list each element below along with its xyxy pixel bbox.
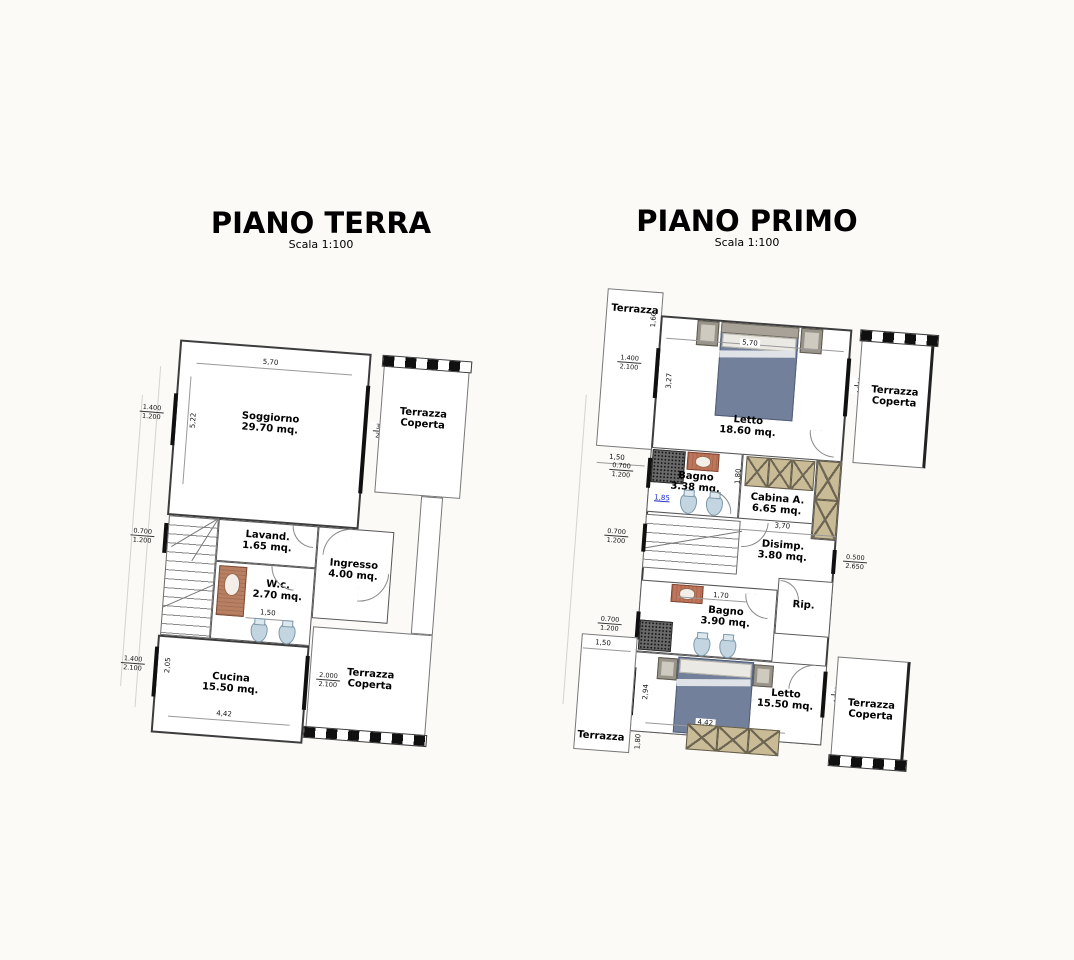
wardrobe-symbol bbox=[747, 728, 780, 756]
window-dim-bagno-grande-left: 0.700 1.200 bbox=[594, 614, 625, 633]
first-floor-title: PIANO PRIMO bbox=[582, 204, 912, 238]
wardrobe-symbol bbox=[815, 460, 842, 501]
room-label-bagno-grande: Bagno 3.90 mq. bbox=[695, 604, 756, 630]
ground-floor-plan: Soggiorno 29.70 mq. 5,70 5,22 1.400 1.20… bbox=[151, 339, 475, 755]
nightstand-symbol bbox=[657, 657, 679, 680]
nightstand-symbol bbox=[800, 328, 824, 355]
window-dim-stairs-left: 0.700 1.200 bbox=[127, 526, 158, 545]
wardrobe-symbol bbox=[767, 458, 792, 490]
window-dim-cucina-right: 2.000 2.100 bbox=[313, 670, 344, 689]
wardrobe-symbol bbox=[685, 723, 718, 751]
window-height: 2.650 bbox=[839, 561, 870, 571]
window-dim-letto-grande-left: 1.400 2.100 bbox=[614, 353, 645, 372]
dim-terrace-bottom-depth: 1,80 bbox=[633, 733, 642, 749]
bed-fold bbox=[677, 679, 751, 686]
terrace-label: Terrazza Coperta bbox=[838, 697, 903, 724]
nightstand-top bbox=[661, 661, 674, 676]
dim-terrace-top-depth: 1,60 bbox=[649, 311, 658, 327]
dim-bagno-grande-width: 1,70 bbox=[711, 591, 731, 600]
window-disimpegno-right bbox=[831, 550, 837, 574]
dim-bagno-piccolo-width: 1,85 bbox=[654, 493, 670, 502]
shower-tray bbox=[223, 572, 241, 596]
first-floor-plan: Terrazza 1,60 5,70 Letto 18.60 mq. 1.400… bbox=[573, 286, 939, 777]
sink-symbol bbox=[686, 452, 719, 472]
window-dim-stairs-left: 0.700 1.200 bbox=[601, 526, 632, 545]
window-dim-disimpegno-right: 0.500 2.650 bbox=[839, 552, 870, 571]
dim-cabina-width: 3,70 bbox=[774, 521, 790, 530]
window-height: 1.200 bbox=[594, 623, 625, 633]
dim-offset-bottom: 1,50 bbox=[595, 638, 611, 647]
ground-floor-title: PIANO TERRA bbox=[156, 206, 486, 240]
window-dim-cucina-left: 1.400 2.100 bbox=[117, 654, 148, 673]
window-dim-soggiorno-left: 1.400 1.200 bbox=[136, 402, 167, 421]
first-floor-scale: Scala 1:100 bbox=[582, 236, 912, 249]
bed-fold bbox=[719, 350, 795, 357]
dim-letto-piccolo-height: 2,94 bbox=[641, 684, 650, 700]
nightstand-top bbox=[757, 669, 770, 684]
shower-symbol bbox=[638, 620, 673, 652]
dim-soggiorno-width: 5,70 bbox=[262, 358, 278, 367]
terrace-strip bbox=[411, 496, 443, 635]
wardrobe-symbol bbox=[716, 726, 749, 754]
wardrobe-symbol bbox=[790, 460, 815, 492]
nightstand-symbol bbox=[696, 320, 720, 347]
dim-soggiorno-height: 5,22 bbox=[189, 412, 198, 428]
dim-wc-width: 1,50 bbox=[260, 608, 276, 617]
wardrobe-symbol bbox=[744, 456, 769, 488]
sink-basin bbox=[694, 456, 712, 468]
dim-cucina-width: 4,42 bbox=[216, 709, 232, 718]
dim-letto-grande-width: 5,70 bbox=[740, 338, 760, 347]
dim-cucina-height: 2,05 bbox=[163, 657, 172, 673]
nightstand-symbol bbox=[752, 664, 774, 687]
window-height: 1.200 bbox=[606, 470, 637, 480]
shower-symbol bbox=[216, 565, 248, 617]
window-height: 1.200 bbox=[601, 535, 632, 545]
sink-symbol bbox=[670, 584, 703, 604]
window-dim-bagno-piccolo-left: 0.700 1.200 bbox=[606, 461, 637, 480]
terrace-label: Terrazza Coperta bbox=[862, 384, 927, 411]
ground-floor-scale: Scala 1:100 bbox=[156, 238, 486, 251]
dim-letto-grande-height: 3,27 bbox=[664, 373, 673, 389]
